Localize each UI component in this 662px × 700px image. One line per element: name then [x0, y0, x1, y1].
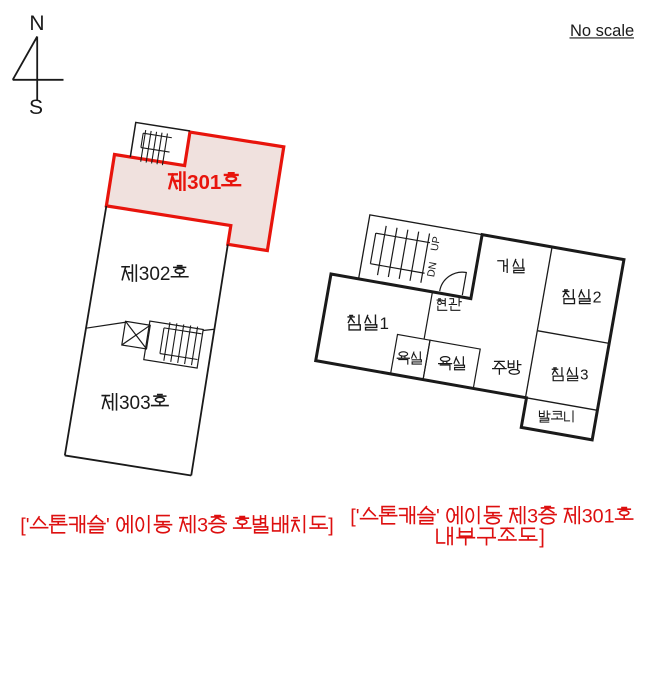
- svg-text:]: ]: [539, 527, 545, 549]
- svg-text:DN: DN: [425, 261, 439, 278]
- svg-text:': ': [106, 515, 110, 537]
- svg-text:UP: UP: [429, 236, 443, 252]
- svg-text:3: 3: [197, 515, 208, 537]
- svg-text:[': [': [20, 515, 29, 537]
- svg-text:302: 302: [139, 264, 171, 285]
- svg-text:303: 303: [119, 393, 151, 414]
- svg-text:3: 3: [527, 506, 538, 528]
- svg-text:S: S: [29, 96, 43, 119]
- svg-text:301: 301: [187, 171, 221, 194]
- svg-text:[': [': [350, 506, 359, 528]
- svg-text:': ': [436, 506, 440, 528]
- svg-text:N: N: [29, 12, 44, 35]
- svg-text:]: ]: [328, 515, 333, 537]
- svg-text:3: 3: [580, 367, 588, 384]
- svg-text:1: 1: [380, 314, 389, 333]
- svg-text:2: 2: [593, 290, 602, 307]
- svg-text:No scale: No scale: [570, 22, 634, 40]
- svg-text:301: 301: [582, 506, 615, 528]
